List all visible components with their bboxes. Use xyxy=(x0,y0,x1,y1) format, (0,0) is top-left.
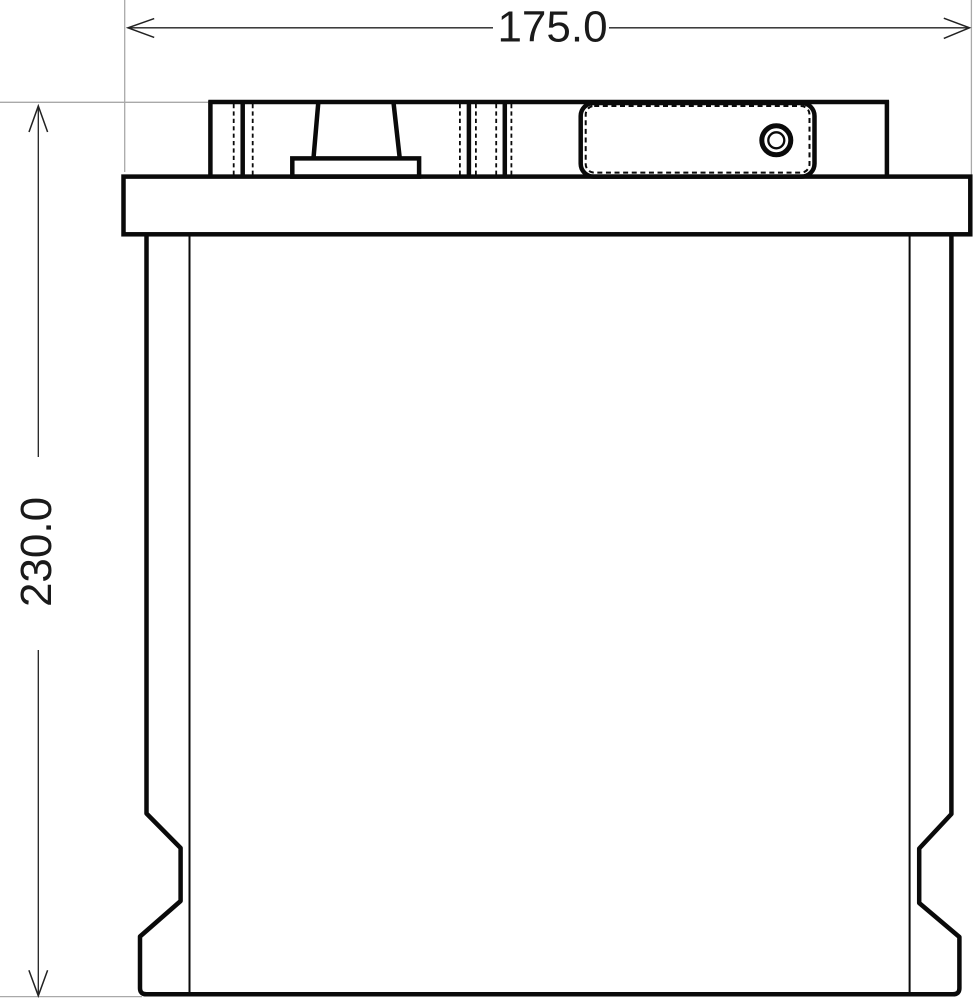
svg-text:175.0: 175.0 xyxy=(497,3,607,52)
svg-text:230.0: 230.0 xyxy=(12,497,61,607)
